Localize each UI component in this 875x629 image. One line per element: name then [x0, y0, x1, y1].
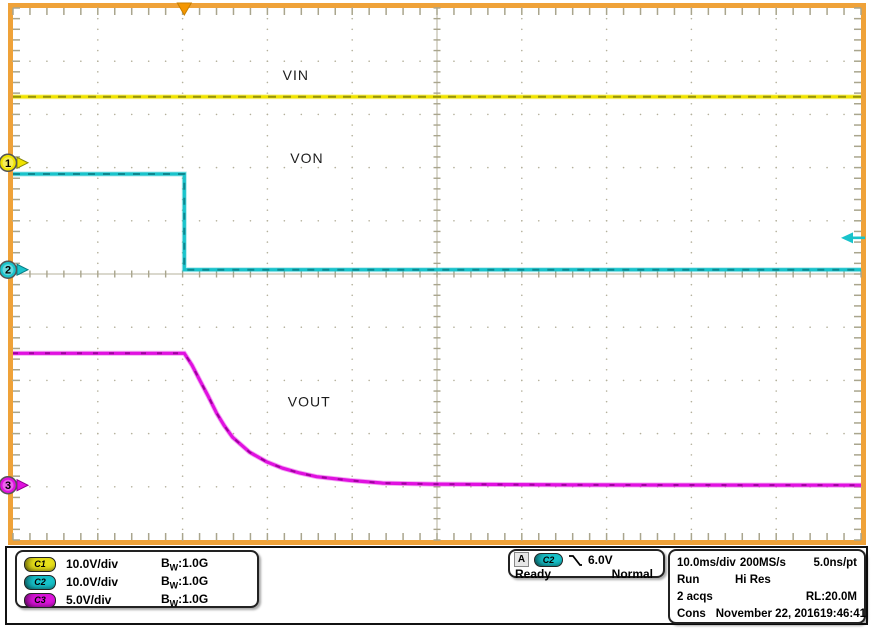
graticule: 123VINVONVOUT [8, 3, 866, 545]
trigger-state: Ready [515, 567, 551, 581]
run-state: Run [677, 574, 735, 586]
time-label: 19:46:41 [820, 608, 866, 620]
trace-label-vout: VOUT [288, 394, 331, 410]
falling-edge-icon [568, 553, 583, 567]
channel-3-bandwidth: BW:1.0G [161, 592, 208, 608]
bw-prefix: B [161, 592, 170, 606]
bw-value: :1.0G [178, 592, 208, 606]
timebase-row: 10.0ms/div 200MS/s 5.0ns/pt [677, 554, 857, 571]
bw-sub: W [170, 580, 179, 590]
readout-bar: C1 10.0V/div BW:1.0G C2 10.0V/div BW:1.0… [5, 546, 868, 625]
channel-marker-3[interactable]: 3 [0, 477, 28, 494]
horizontal-readout-box[interactable]: 10.0ms/div 200MS/s 5.0ns/pt Run Hi Res 2… [668, 549, 866, 624]
channel-badge-c3[interactable]: C3 [24, 593, 56, 608]
graticule-grid [12, 7, 862, 541]
channel-marker-number: 1 [5, 158, 11, 170]
bw-prefix: B [161, 556, 170, 570]
date-label: November 22, 2016 [716, 608, 820, 620]
channel-2-readout[interactable]: C2 10.0V/div BW:1.0G [24, 573, 257, 591]
channel-badge-c1[interactable]: C1 [24, 557, 56, 572]
channel-badge-c2[interactable]: C2 [24, 575, 56, 590]
trigger-position-marker[interactable] [177, 3, 191, 15]
acquisition-count-row: 2 acqs RL:20.0M [677, 588, 857, 605]
channel-3-readout[interactable]: C3 5.0V/div BW:1.0G [24, 591, 257, 609]
bw-sub: W [170, 562, 179, 572]
channel-3-scale: 5.0V/div [66, 593, 161, 607]
datetime-row: Cons November 22, 2016 19:46:41 [677, 605, 857, 622]
channel-marker-number: 3 [5, 480, 11, 492]
channel-2-bandwidth: BW:1.0G [161, 574, 208, 590]
bw-sub: W [170, 598, 179, 608]
trigger-settings-row: A C2 6.0V [514, 552, 659, 567]
channel-2-scale: 10.0V/div [66, 575, 161, 589]
oscilloscope-screen: 123VINVONVOUT C1 10.0V/div BW:1.0G C2 10… [0, 0, 875, 629]
console-label: Cons [677, 608, 706, 620]
sample-rate: 200MS/s [740, 557, 786, 569]
waveform-display: 123VINVONVOUT [13, 8, 861, 540]
trigger-source-badge[interactable]: C2 [534, 553, 563, 567]
trigger-type: Normal [612, 567, 653, 581]
trace-label-von: VON [290, 150, 323, 166]
channel-readout-box[interactable]: C1 10.0V/div BW:1.0G C2 10.0V/div BW:1.0… [15, 550, 259, 608]
bw-prefix: B [161, 574, 170, 588]
trigger-readout-box[interactable]: A C2 6.0V Ready Normal [508, 549, 665, 578]
trigger-mode-a: A [514, 552, 529, 567]
channel-marker-2[interactable]: 2 [0, 261, 28, 278]
trace-label-vin: VIN [283, 67, 309, 83]
trigger-level-value: 6.0V [588, 553, 613, 567]
record-length: RL:20.0M [806, 591, 857, 603]
channel-marker-1[interactable]: 1 [0, 154, 28, 171]
channel-1-readout[interactable]: C1 10.0V/div BW:1.0G [24, 555, 257, 573]
channel-1-scale: 10.0V/div [66, 557, 161, 571]
channel-marker-number: 2 [5, 265, 11, 277]
bw-value: :1.0G [178, 574, 208, 588]
trigger-status-row: Ready Normal [514, 567, 659, 580]
acquisition-state-row: Run Hi Res [677, 571, 857, 588]
acquisition-mode: Hi Res [735, 574, 771, 586]
sample-resolution: 5.0ns/pt [814, 557, 857, 569]
acquisition-count: 2 acqs [677, 591, 713, 603]
time-per-div: 10.0ms/div [677, 557, 736, 569]
bw-value: :1.0G [178, 556, 208, 570]
trigger-level-marker[interactable] [841, 232, 865, 243]
channel-1-bandwidth: BW:1.0G [161, 556, 208, 572]
